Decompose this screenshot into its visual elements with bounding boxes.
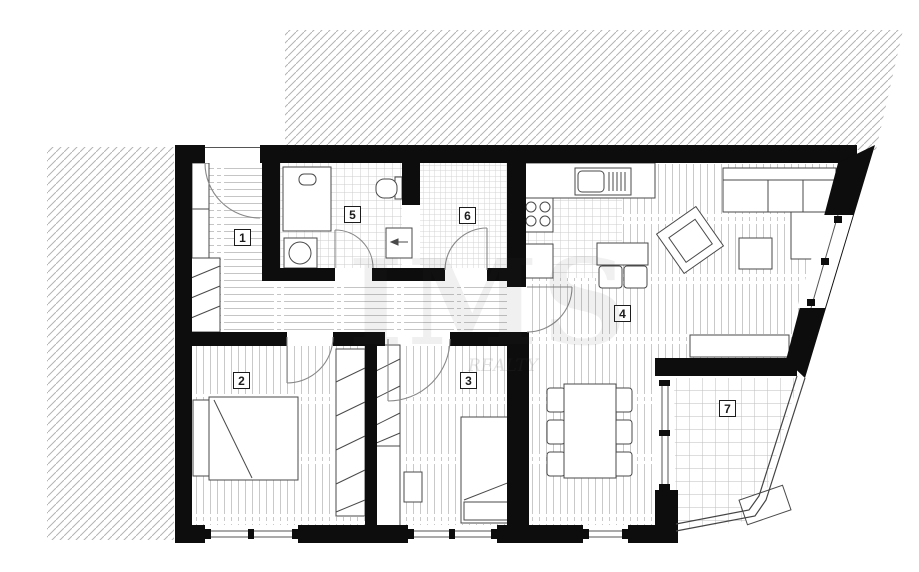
shower bbox=[283, 167, 331, 231]
water-heater bbox=[386, 228, 412, 258]
wall-corridor-b bbox=[333, 332, 385, 346]
hatch-area-top bbox=[285, 30, 903, 150]
kitchen-cabinet bbox=[522, 244, 553, 278]
wall-wc-kitchen bbox=[507, 145, 526, 287]
hatch-area-left bbox=[47, 147, 174, 540]
nightstand bbox=[404, 472, 422, 502]
washing-machine bbox=[284, 238, 317, 268]
room-label-5: 5 bbox=[344, 206, 361, 223]
terrace-glass-door bbox=[657, 380, 674, 490]
single-bed bbox=[461, 417, 512, 523]
floor-plan-drawing bbox=[0, 0, 919, 572]
hall-cabinet-lower bbox=[192, 209, 209, 258]
hall-cabinet-upper bbox=[192, 163, 209, 209]
kitchen-sink bbox=[575, 168, 631, 195]
wall-terrace-corner bbox=[655, 490, 678, 543]
wall-corridor-a bbox=[192, 332, 287, 346]
wall-corridor-c bbox=[450, 332, 507, 346]
wall-dining-bedroom3 bbox=[507, 332, 529, 527]
wall-bath-bottom-b bbox=[372, 268, 445, 281]
cooktop bbox=[522, 198, 553, 232]
coffee-table bbox=[739, 238, 772, 269]
double-bed bbox=[193, 397, 298, 480]
sideboard bbox=[690, 335, 789, 357]
wall-hall-bath bbox=[262, 145, 280, 281]
bedroom2-wardrobe bbox=[336, 349, 365, 516]
bedroom3-wardrobe bbox=[374, 345, 400, 526]
wall-bath-bottom-c bbox=[487, 268, 507, 281]
bedroom2-window bbox=[205, 525, 298, 543]
wall-left bbox=[175, 145, 192, 543]
room-label-1: 1 bbox=[234, 229, 251, 246]
room-label-3: 3 bbox=[460, 372, 477, 389]
wall-bath-bottom-a bbox=[280, 268, 335, 281]
kitchen-table-set bbox=[597, 243, 648, 288]
wall-terrace-top bbox=[655, 358, 797, 376]
room-label-7: 7 bbox=[719, 400, 736, 417]
wall-bath-wc bbox=[402, 145, 420, 205]
floor-plan: 1 2 3 4 5 6 7 IMS REALTY bbox=[0, 0, 919, 572]
dining-window bbox=[583, 525, 628, 543]
room-label-4: 4 bbox=[614, 305, 631, 322]
hall-wardrobe bbox=[191, 258, 220, 332]
room-label-6: 6 bbox=[459, 207, 476, 224]
toilet bbox=[376, 177, 402, 199]
room-label-2: 2 bbox=[233, 372, 250, 389]
dining-set bbox=[547, 384, 632, 478]
wall-bedroom2-bedroom3 bbox=[365, 332, 377, 525]
bedroom3-window bbox=[408, 525, 497, 543]
